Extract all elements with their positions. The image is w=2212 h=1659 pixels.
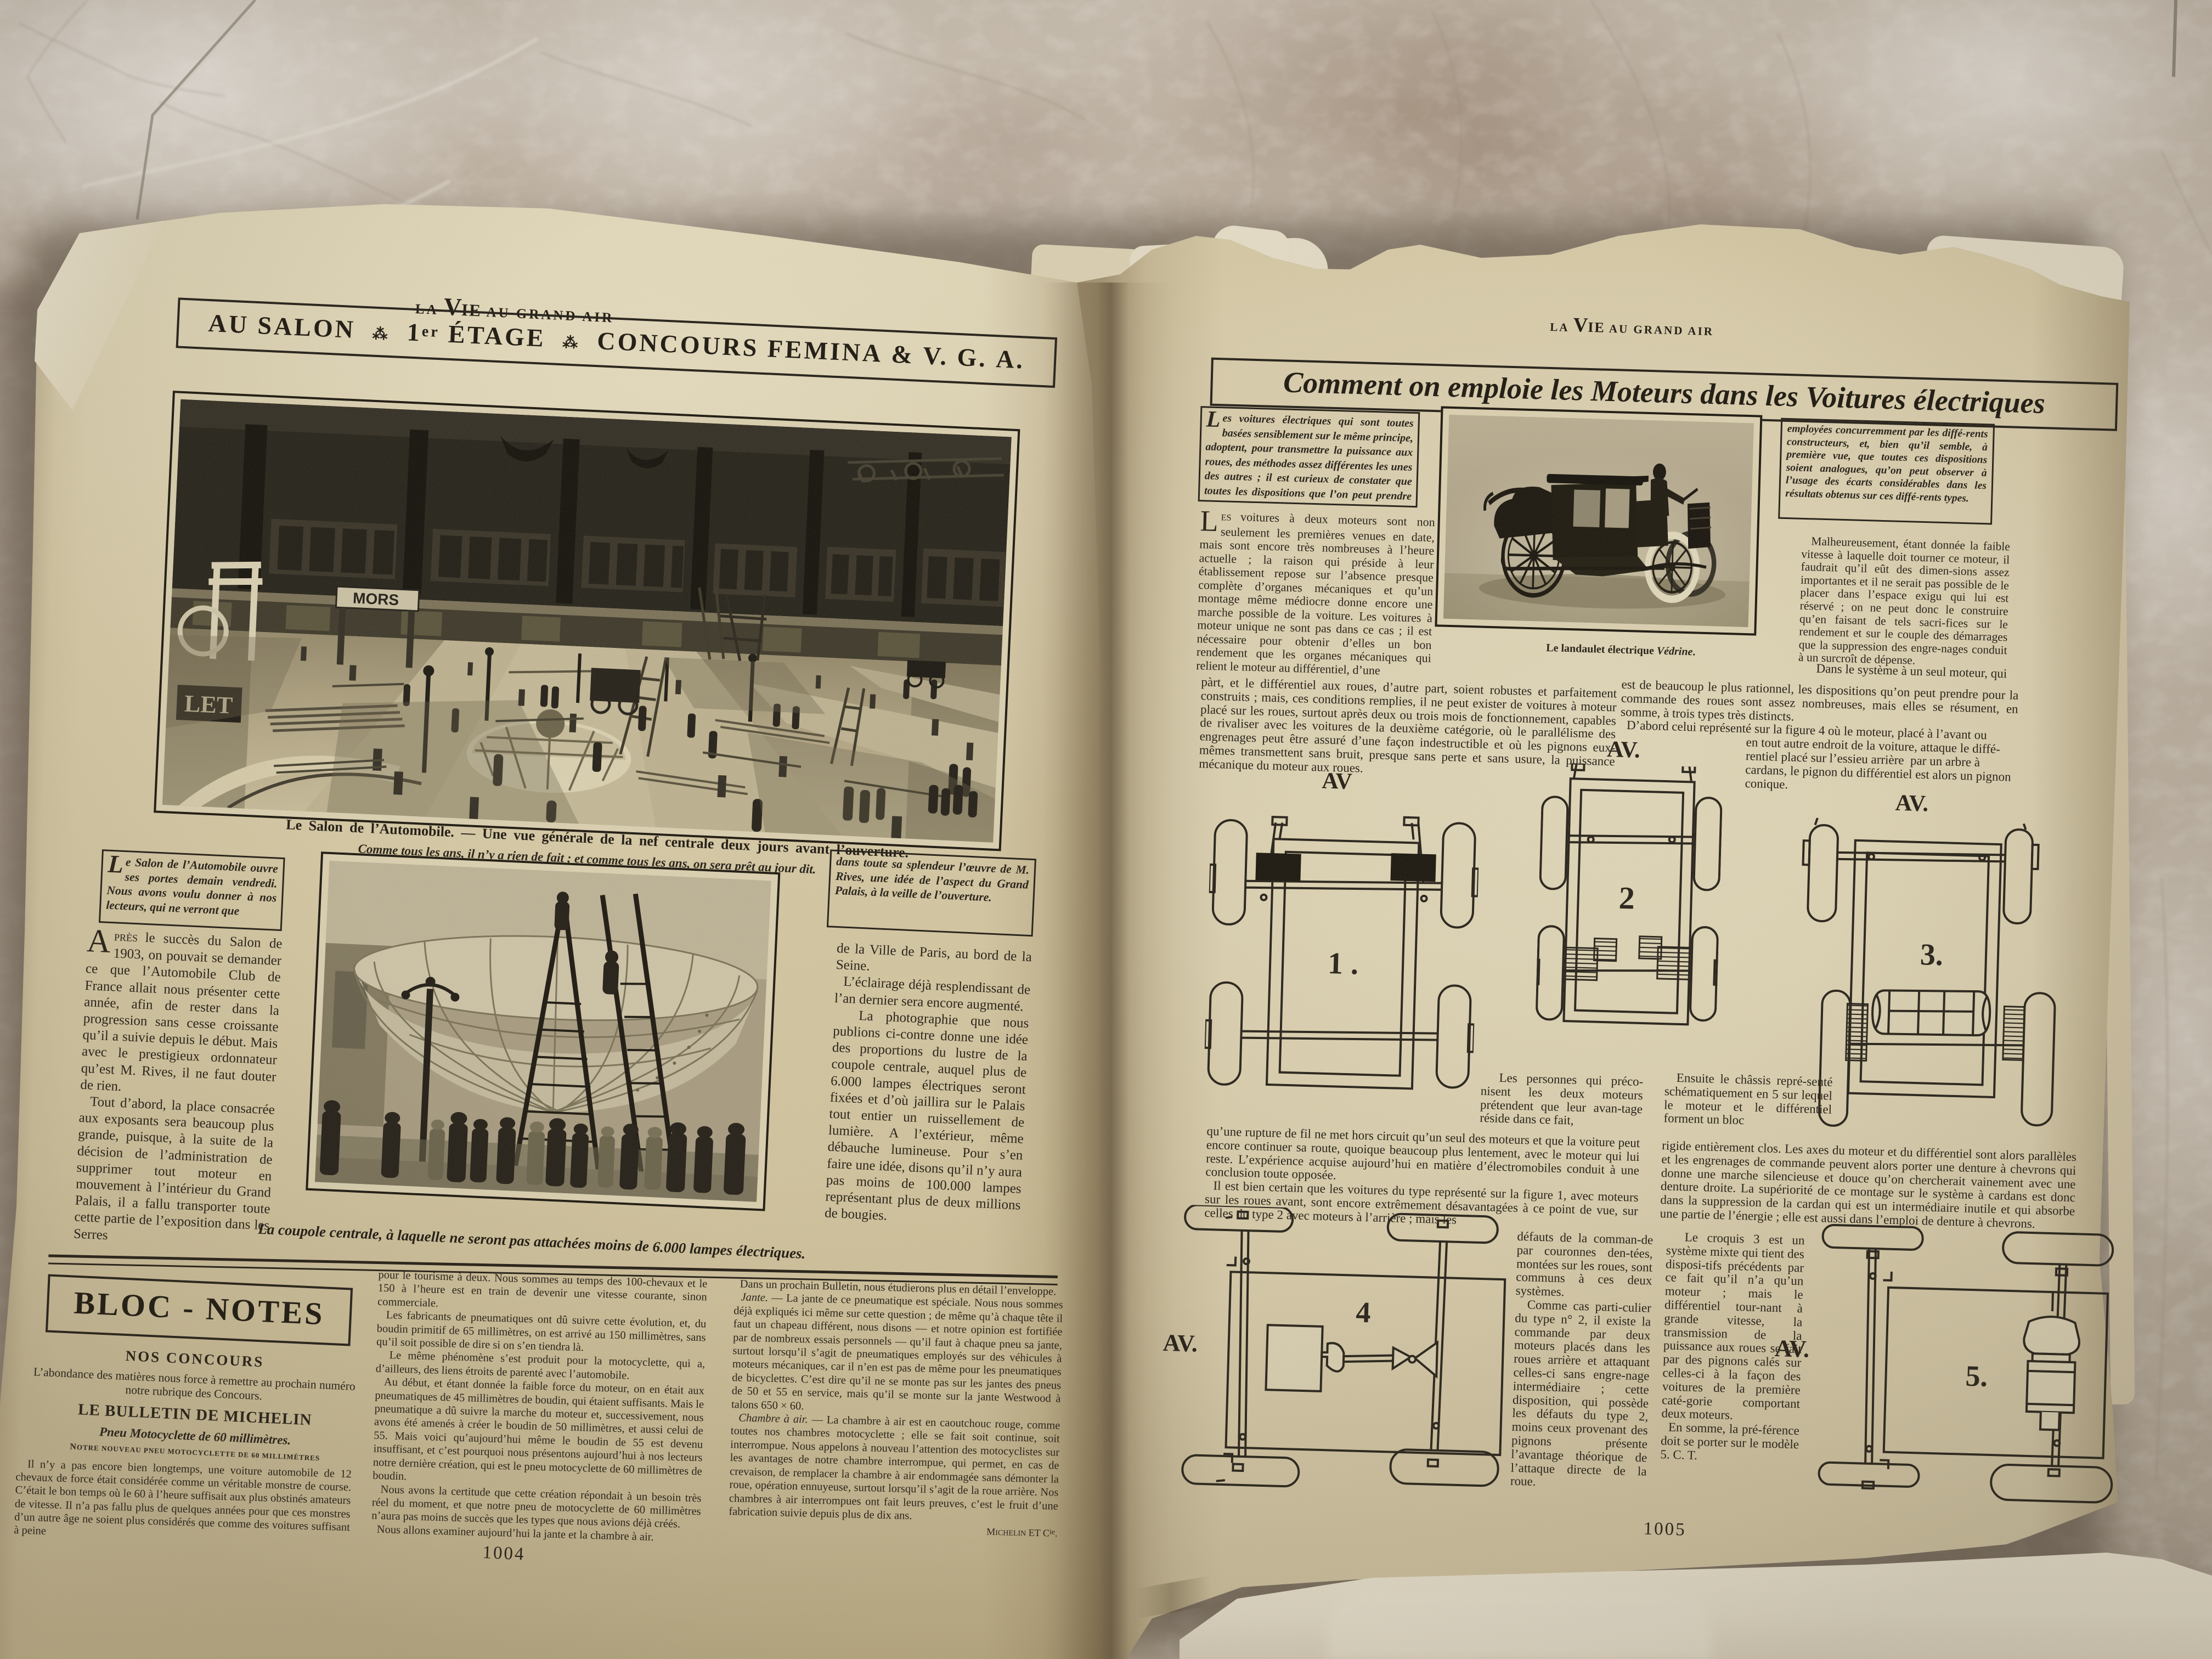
- svg-text:3.: 3.: [1920, 938, 1944, 972]
- svg-text:1 .: 1 .: [1327, 946, 1359, 981]
- svg-text:4: 4: [1356, 1296, 1372, 1329]
- svg-text:MORS: MORS: [353, 589, 399, 608]
- svg-text:2: 2: [1618, 880, 1635, 916]
- svg-text:5.: 5.: [1965, 1359, 1988, 1393]
